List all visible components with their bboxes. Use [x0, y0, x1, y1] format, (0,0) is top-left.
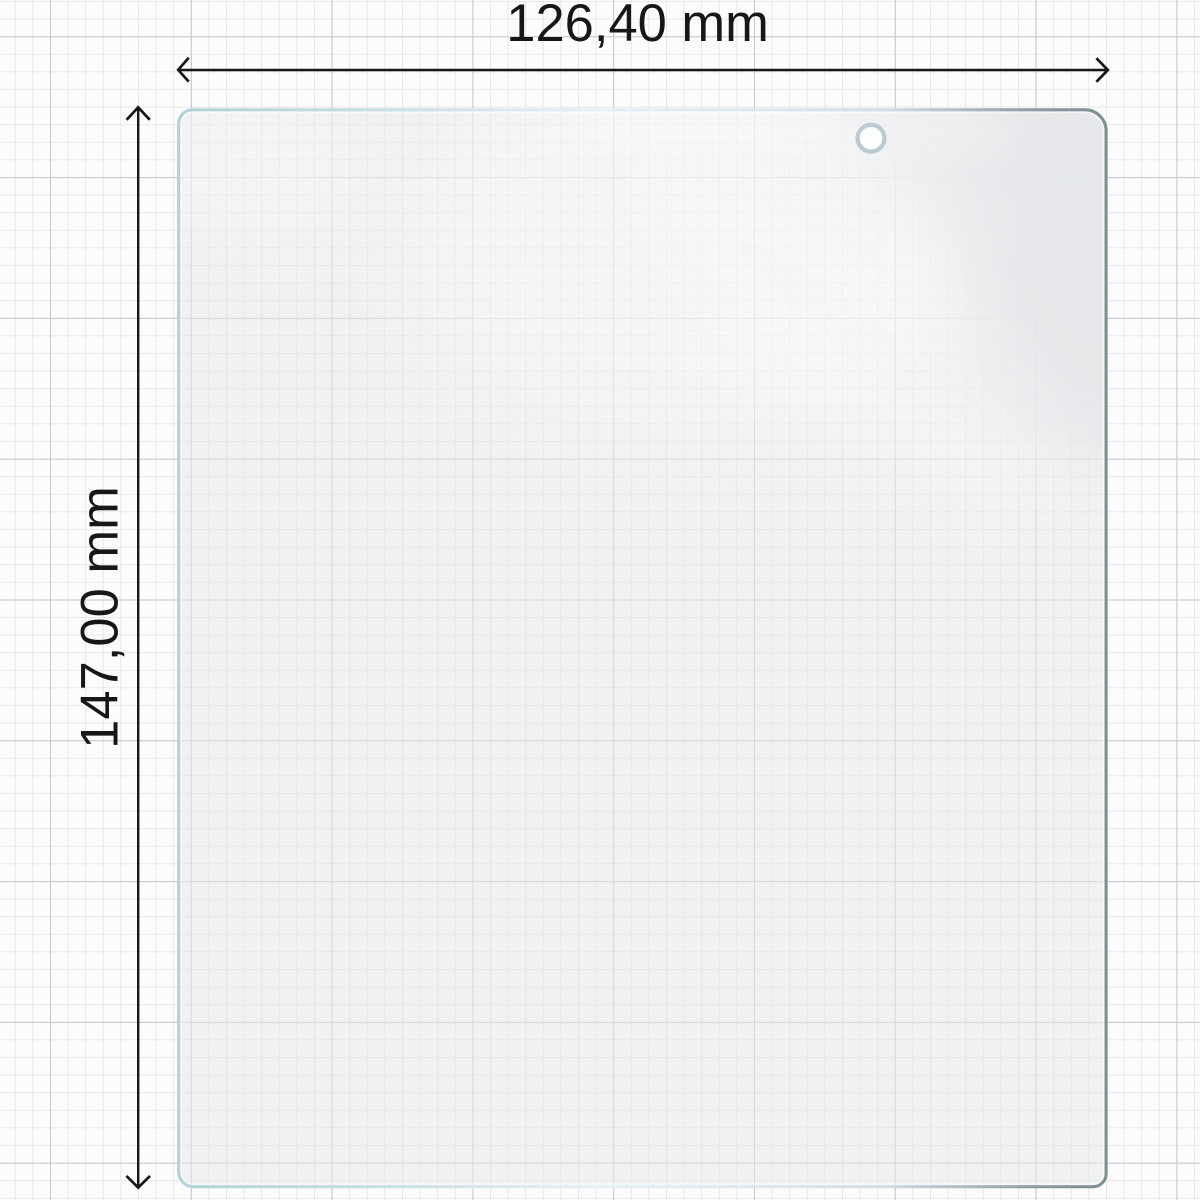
- svg-text:126,40 mm: 126,40 mm: [506, 0, 769, 53]
- svg-text:147,00 mm: 147,00 mm: [71, 486, 130, 749]
